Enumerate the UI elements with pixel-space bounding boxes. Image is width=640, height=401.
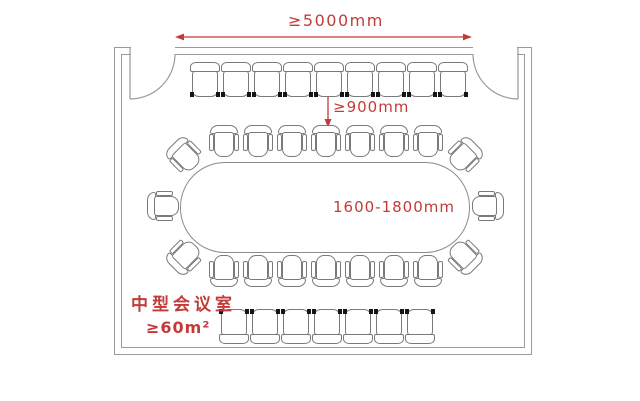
chair-seat [472,196,497,216]
chair [243,253,273,287]
dimension-arrow-room-width [175,34,472,41]
room-area-label: ≥60m² [146,319,210,337]
chair-arm-tip [464,92,468,97]
chair-seat [316,255,336,280]
chair-arm-tip [340,92,344,97]
chair-arm-tip [405,309,409,314]
chair-arm-tip [252,92,256,97]
chair-arm-tip [402,92,406,97]
chair-seat [214,132,234,157]
chair [252,62,282,100]
chair-arm-tip [400,309,404,314]
chair-armrest [404,134,409,151]
chair-armrest [404,261,409,278]
chair-seat [214,255,234,280]
chair [190,62,220,100]
chair-seat [350,255,370,280]
chair-back [405,334,435,344]
chair-seat [252,309,278,335]
chair-arm-tip [371,92,375,97]
chair [345,125,375,159]
chair-armrest [268,261,273,278]
chair [281,306,311,344]
chair [250,306,280,344]
chair-arm-tip [338,309,342,314]
chair-seat [283,309,309,335]
chair-arm-tip [278,92,282,97]
dimension-label-front-clearance: ≥900mm [333,99,409,116]
chair-arm-tip [433,92,437,97]
chair-back [281,334,311,344]
door-swing-arc-right [473,54,518,99]
chair-armrest [156,216,173,221]
chair-back [374,334,404,344]
chair-armrest [478,216,495,221]
chair [376,62,406,100]
chair-arm-tip [250,309,254,314]
chair [374,306,404,344]
chair [343,306,373,344]
chair-armrest [438,261,443,278]
chair [311,125,341,159]
chair-armrest [336,134,341,151]
chair-arm-tip [309,92,313,97]
chair [407,62,437,100]
chair-armrest [234,134,239,151]
chair-armrest [370,261,375,278]
chair-seat [248,255,268,280]
chair-back [312,334,342,344]
room-type-label: 中型会议室 [131,296,236,315]
chair-seat [345,309,371,335]
chair [470,191,504,221]
chair-seat [384,255,404,280]
chair [147,191,181,221]
chair-seat [347,71,373,97]
chair-back [343,334,373,344]
chair-arm-tip [343,309,347,314]
chair-armrest [336,261,341,278]
chair [345,253,375,287]
chair-armrest [438,134,443,151]
chair-arm-tip [312,309,316,314]
chair [405,306,435,344]
chair-back [219,334,249,344]
chair-seat [154,196,179,216]
chair-arm-tip [369,309,373,314]
chair-armrest [268,134,273,151]
chair-back [250,334,280,344]
chair [209,125,239,159]
chair [379,125,409,159]
chair-seat [350,132,370,157]
chair [277,253,307,287]
chair [277,125,307,159]
chair-arm-tip [281,309,285,314]
door-swing-arc-left [130,54,175,99]
chair-armrest [234,261,239,278]
chair [438,62,468,100]
chair-seat [316,132,336,157]
chair [379,253,409,287]
chair [209,253,239,287]
chair-arm-tip [374,309,378,314]
chair-arm-tip [307,309,311,314]
chair-armrest [302,134,307,151]
chair-arm-tip [438,92,442,97]
chair-seat [316,71,342,97]
dimension-label-room-width: ≥5000mm [288,12,384,30]
chair-seat [378,71,404,97]
chair-arm-tip [283,92,287,97]
chair-seat [418,255,438,280]
chair-seat [409,71,435,97]
chair-arm-tip [276,309,280,314]
chair-seat [223,71,249,97]
chair-arm-tip [314,92,318,97]
chair-seat [376,309,402,335]
chair-seat [285,71,311,97]
chair [345,62,375,100]
chair-arm-tip [190,92,194,97]
chair-armrest [370,134,375,151]
chair-seat [440,71,466,97]
chair-armrest [302,261,307,278]
chair [243,125,273,159]
chair-arm-tip [376,92,380,97]
dimension-label-table-width: 1600-1800mm [333,199,455,216]
chair [413,253,443,287]
chair-arm-tip [216,92,220,97]
chair [283,62,313,100]
chair [314,62,344,100]
chair-arm-tip [221,92,225,97]
chair [221,62,251,100]
chair-arm-tip [345,92,349,97]
chair-seat [384,132,404,157]
chair-seat [192,71,218,97]
conference-room-floor-plan: ≥5000mm ≥900mm 1600-1800mm 中型会议室 ≥60m² [0,0,640,401]
chair-seat [407,309,433,335]
chair-seat [282,132,302,157]
chair-seat [418,132,438,157]
chair-seat [254,71,280,97]
chair-seat [248,132,268,157]
chair-seat [314,309,340,335]
chair-seat [282,255,302,280]
chair [312,306,342,344]
chair-arm-tip [431,309,435,314]
chair-arm-tip [247,92,251,97]
chair-arm-tip [245,309,249,314]
chair [311,253,341,287]
chair [413,125,443,159]
chair-arm-tip [407,92,411,97]
